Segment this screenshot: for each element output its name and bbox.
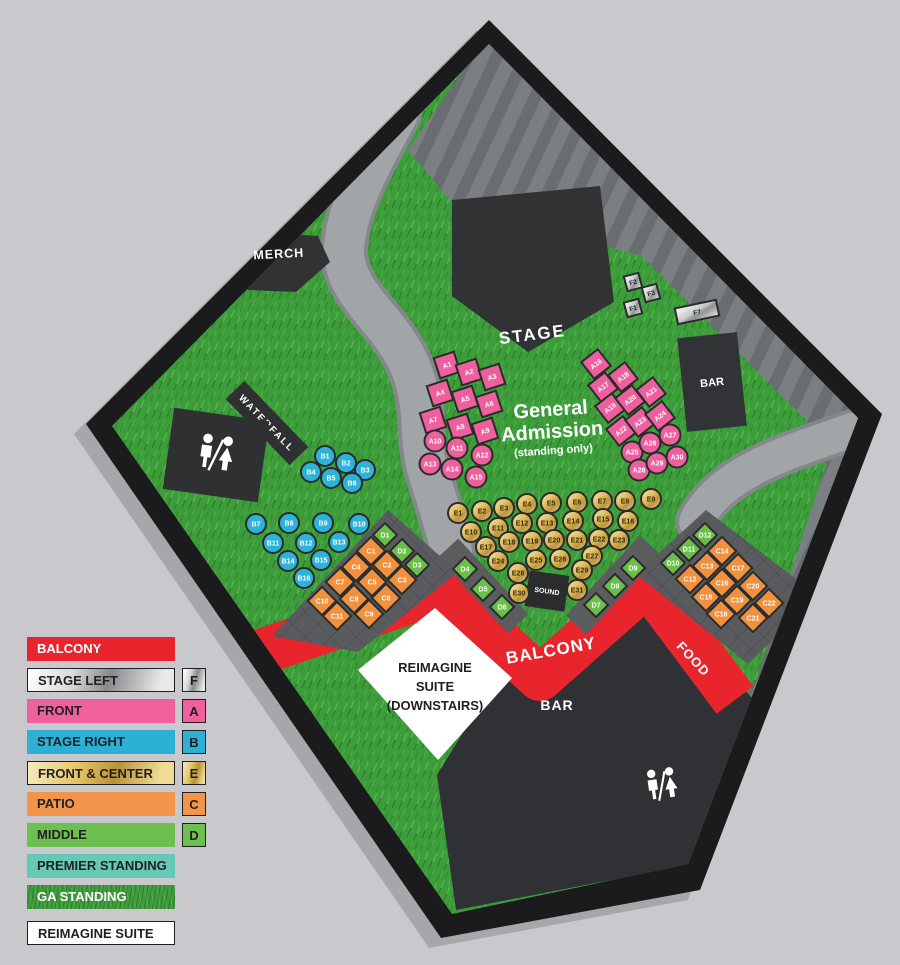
svg-text:D10: D10: [667, 561, 680, 568]
seat-e16[interactable]: E16: [618, 511, 638, 531]
svg-text:C8: C8: [350, 597, 359, 604]
seat-e3[interactable]: E3: [494, 498, 514, 518]
legend-label: MIDDLE: [37, 827, 87, 842]
svg-text:A29: A29: [651, 461, 664, 468]
svg-text:REIMAGINE: REIMAGINE: [398, 660, 472, 675]
svg-text:E2: E2: [478, 509, 487, 516]
legend-swatch-stage-left: STAGE LEFT: [27, 668, 175, 692]
svg-text:B10: B10: [353, 522, 366, 529]
svg-text:C21: C21: [747, 616, 760, 623]
legend-swatch-front: FRONT: [27, 699, 175, 723]
legend-item-front: FRONT A: [27, 699, 233, 723]
svg-text:E24: E24: [492, 559, 505, 566]
svg-text:B11: B11: [267, 541, 280, 548]
seat-b12[interactable]: B12: [296, 533, 316, 553]
svg-text:E21: E21: [571, 538, 584, 545]
seat-b6[interactable]: B6: [342, 473, 362, 493]
seat-b1[interactable]: B1: [315, 446, 335, 466]
svg-text:E29: E29: [576, 568, 589, 575]
svg-text:C7: C7: [336, 580, 345, 587]
bar-lower-label: BAR: [540, 697, 573, 713]
svg-text:E26: E26: [554, 557, 567, 564]
svg-text:A10: A10: [429, 439, 442, 446]
svg-text:B14: B14: [282, 559, 295, 566]
legend-item-premier-standing: PREMIER STANDING: [27, 854, 233, 878]
seat-b5[interactable]: B5: [321, 468, 341, 488]
seat-a10[interactable]: A10: [425, 431, 446, 452]
svg-text:E5: E5: [547, 501, 556, 508]
seat-e23[interactable]: E23: [609, 530, 629, 550]
svg-text:E13: E13: [541, 521, 554, 528]
legend-item-stage-left: STAGE LEFT F: [27, 668, 233, 692]
seat-b9[interactable]: B9: [313, 513, 333, 533]
legend-badge-c: C: [182, 792, 206, 816]
legend-badge-b: B: [182, 730, 206, 754]
svg-text:E1: E1: [454, 511, 463, 518]
svg-text:B9: B9: [319, 521, 328, 528]
bar-upper: BAR: [677, 332, 746, 432]
svg-text:E30: E30: [513, 591, 526, 598]
svg-text:D2: D2: [398, 549, 407, 556]
svg-text:A25: A25: [626, 450, 639, 457]
svg-text:A30: A30: [671, 455, 684, 462]
svg-text:B1: B1: [321, 454, 330, 461]
svg-text:E7: E7: [598, 499, 607, 506]
legend-item-balcony: BALCONY: [27, 637, 233, 661]
legend-label: PATIO: [37, 796, 75, 811]
legend-item-middle: MIDDLE D: [27, 823, 233, 847]
seat-f3[interactable]: F3: [642, 284, 660, 302]
svg-text:E17: E17: [480, 545, 493, 552]
svg-text:B13: B13: [333, 540, 346, 547]
svg-text:A13: A13: [424, 462, 437, 469]
svg-text:(DOWNSTAIRS): (DOWNSTAIRS): [387, 698, 484, 713]
seat-e6[interactable]: E6: [567, 492, 587, 512]
svg-text:C2: C2: [383, 563, 392, 570]
legend-item-stage-right: STAGE RIGHT B: [27, 730, 233, 754]
svg-text:E20: E20: [548, 538, 561, 545]
svg-text:E10: E10: [465, 530, 478, 537]
seat-a14[interactable]: A14: [442, 459, 463, 480]
svg-text:E8: E8: [621, 499, 630, 506]
svg-text:A11: A11: [451, 446, 464, 453]
seat-a13[interactable]: A13: [420, 454, 441, 475]
merch-label: MERCH: [253, 246, 305, 263]
legend-swatch-middle: MIDDLE: [27, 823, 175, 847]
svg-text:C5: C5: [368, 580, 377, 587]
legend-label: GA STANDING: [37, 889, 127, 904]
seat-a27[interactable]: A27: [660, 425, 681, 446]
seat-e29[interactable]: E29: [572, 560, 592, 580]
svg-text:C20: C20: [747, 584, 760, 591]
svg-text:E16: E16: [622, 519, 635, 526]
legend-badge-a: A: [182, 699, 206, 723]
svg-text:D11: D11: [683, 547, 696, 554]
svg-text:C22: C22: [763, 601, 776, 608]
legend-swatch-ga-standing: GA STANDING: [27, 885, 175, 909]
svg-text:B3: B3: [361, 468, 370, 475]
seat-e12[interactable]: E12: [512, 513, 532, 533]
svg-text:E4: E4: [523, 502, 532, 509]
svg-text:C15: C15: [700, 595, 713, 602]
legend-swatch-balcony: BALCONY: [27, 637, 175, 661]
legend-swatch-stage-right: STAGE RIGHT: [27, 730, 175, 754]
seat-e8[interactable]: E8: [615, 491, 635, 511]
legend-item-front-center: FRONT & CENTER E: [27, 761, 233, 785]
svg-text:B5: B5: [327, 476, 336, 483]
svg-text:B8: B8: [285, 521, 294, 528]
svg-text:C3: C3: [398, 578, 407, 585]
svg-text:D5: D5: [479, 587, 488, 594]
seat-b13[interactable]: B13: [329, 532, 349, 552]
legend-label: FRONT: [37, 703, 82, 718]
svg-text:E28: E28: [512, 571, 525, 578]
seat-a11[interactable]: A11: [447, 438, 468, 459]
svg-text:E22: E22: [593, 537, 606, 544]
seat-f1[interactable]: F1: [624, 299, 642, 317]
legend-label: STAGE LEFT: [38, 673, 118, 688]
svg-text:BAR: BAR: [700, 376, 725, 390]
svg-text:SUITE: SUITE: [416, 679, 455, 694]
seat-e4[interactable]: E4: [517, 494, 537, 514]
legend-item-ga-standing: GA STANDING: [27, 885, 233, 909]
seat-b16[interactable]: B16: [294, 568, 314, 588]
legend: BALCONY STAGE LEFT F FRONT A STAGE RIGHT…: [0, 0, 230, 965]
seat-e28[interactable]: E28: [508, 563, 528, 583]
svg-text:D3: D3: [413, 563, 422, 570]
legend-item-reimagine-suite: REIMAGINE SUITE: [27, 921, 233, 945]
svg-text:A12: A12: [476, 453, 489, 460]
svg-text:A14: A14: [446, 467, 459, 474]
svg-text:E18: E18: [503, 540, 516, 547]
svg-text:E3: E3: [500, 506, 509, 513]
svg-text:C9: C9: [365, 612, 374, 619]
sound-booth: SOUND: [525, 570, 570, 611]
seat-a12[interactable]: A12: [472, 445, 493, 466]
svg-text:D1: D1: [381, 533, 390, 540]
svg-text:C17: C17: [732, 566, 745, 573]
seat-e15[interactable]: E15: [593, 509, 613, 529]
svg-text:D7: D7: [592, 603, 601, 610]
svg-text:D12: D12: [699, 533, 712, 540]
svg-text:B15: B15: [315, 558, 328, 565]
legend-swatch-premier-standing: PREMIER STANDING: [27, 854, 175, 878]
seat-b2[interactable]: B2: [336, 453, 356, 473]
seat-e20[interactable]: E20: [544, 530, 564, 550]
legend-label: PREMIER STANDING: [37, 858, 167, 873]
seat-a26[interactable]: A26: [640, 433, 661, 454]
legend-item-patio: PATIO C: [27, 792, 233, 816]
legend-swatch-front-center: FRONT & CENTER: [27, 761, 175, 785]
legend-swatch-reimagine-suite: REIMAGINE SUITE: [27, 921, 175, 945]
svg-text:B7: B7: [252, 522, 261, 529]
legend-label: REIMAGINE SUITE: [38, 926, 154, 941]
svg-text:C16: C16: [716, 581, 729, 588]
legend-badge-f: F: [182, 668, 206, 692]
svg-text:E12: E12: [516, 521, 529, 528]
svg-text:E6: E6: [573, 500, 582, 507]
seat-e19[interactable]: E19: [522, 531, 542, 551]
svg-text:C18: C18: [715, 612, 728, 619]
svg-text:E27: E27: [586, 554, 599, 561]
seat-e26[interactable]: E26: [550, 549, 570, 569]
seat-b7[interactable]: B7: [246, 514, 266, 534]
svg-text:D6: D6: [498, 605, 507, 612]
seat-e5[interactable]: E5: [541, 493, 561, 513]
seat-e24[interactable]: E24: [488, 551, 508, 571]
seat-e21[interactable]: E21: [567, 530, 587, 550]
svg-text:E11: E11: [492, 526, 504, 533]
seat-e18[interactable]: E18: [499, 532, 519, 552]
svg-text:C6: C6: [382, 596, 391, 603]
seat-e9[interactable]: E9: [641, 489, 661, 509]
svg-text:E31: E31: [571, 588, 584, 595]
svg-text:C19: C19: [731, 598, 744, 605]
seat-a15[interactable]: A15: [466, 467, 487, 488]
svg-text:A15: A15: [470, 475, 483, 482]
seat-e30[interactable]: E30: [509, 583, 529, 603]
svg-text:B2: B2: [342, 461, 351, 468]
legend-label: FRONT & CENTER: [38, 766, 153, 781]
svg-text:E14: E14: [567, 519, 580, 526]
seat-e31[interactable]: E31: [567, 580, 587, 600]
svg-text:D4: D4: [461, 567, 470, 574]
seat-b11[interactable]: B11: [263, 533, 283, 553]
svg-text:E9: E9: [647, 497, 656, 504]
svg-text:E25: E25: [530, 558, 543, 565]
svg-text:C12: C12: [684, 577, 697, 584]
seat-e10[interactable]: E10: [461, 522, 481, 542]
svg-text:C11: C11: [331, 614, 344, 621]
svg-text:C14: C14: [716, 549, 729, 556]
seat-e7[interactable]: E7: [592, 491, 612, 511]
seat-b8[interactable]: B8: [279, 513, 299, 533]
svg-text:C10: C10: [316, 599, 329, 606]
svg-text:C4: C4: [352, 565, 361, 572]
svg-text:B12: B12: [300, 541, 313, 548]
seat-e25[interactable]: E25: [526, 550, 546, 570]
legend-badge-d: D: [182, 823, 206, 847]
seat-b10[interactable]: B10: [349, 514, 369, 534]
svg-text:E23: E23: [613, 538, 626, 545]
seat-e14[interactable]: E14: [563, 511, 583, 531]
svg-text:B4: B4: [307, 470, 316, 477]
seat-a29[interactable]: A29: [647, 453, 668, 474]
legend-swatch-patio: PATIO: [27, 792, 175, 816]
svg-text:B6: B6: [348, 481, 357, 488]
svg-text:E19: E19: [526, 539, 539, 546]
seat-e2[interactable]: E2: [472, 501, 492, 521]
legend-label: STAGE RIGHT: [37, 734, 125, 749]
svg-text:C1: C1: [367, 549, 376, 556]
legend-badge-e: E: [182, 761, 206, 785]
svg-text:E15: E15: [597, 517, 610, 524]
svg-text:C13: C13: [701, 564, 714, 571]
svg-text:A28: A28: [633, 468, 646, 475]
seat-b15[interactable]: B15: [311, 550, 331, 570]
svg-text:D8: D8: [611, 584, 620, 591]
seat-f2[interactable]: F2: [624, 273, 642, 291]
svg-text:A26: A26: [644, 441, 657, 448]
svg-text:A27: A27: [664, 433, 677, 440]
venue-seat-map: WATERFALL BAR SOUND A1A2A3A4A5A6A7A8A9A1…: [0, 0, 900, 965]
seat-b4[interactable]: B4: [301, 462, 321, 482]
seat-a30[interactable]: A30: [667, 447, 688, 468]
seat-e1[interactable]: E1: [448, 503, 468, 523]
svg-text:D9: D9: [629, 566, 638, 573]
svg-text:B16: B16: [298, 576, 311, 583]
legend-label: BALCONY: [37, 641, 101, 656]
seat-b14[interactable]: B14: [278, 551, 298, 571]
